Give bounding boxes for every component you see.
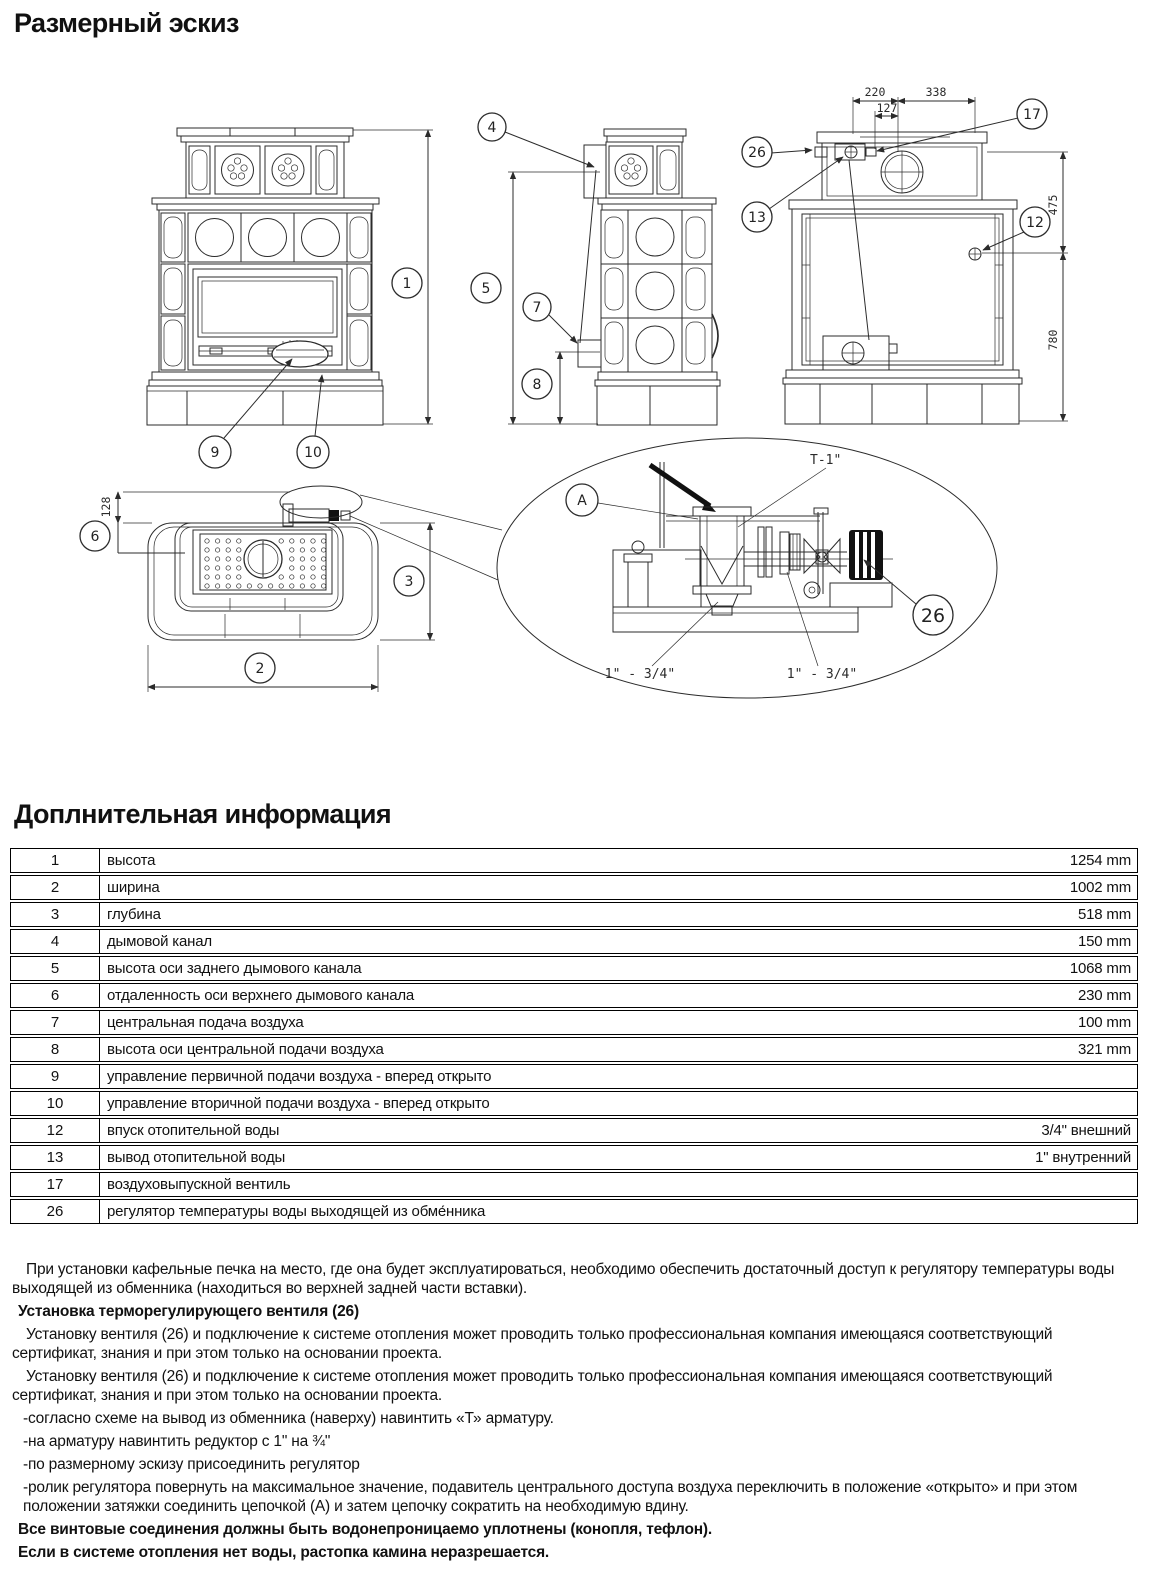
- svg-text:12: 12: [1026, 215, 1044, 231]
- row-value: 100 mm: [1078, 1011, 1137, 1034]
- table-row: 4 дымовой канал 150 mm: [10, 929, 1138, 954]
- svg-text:7: 7: [533, 300, 542, 316]
- row-number: 17: [11, 1173, 100, 1196]
- note-heading-valve-install: Установка терморегулирующего вентиля (26…: [12, 1302, 1138, 1321]
- table-row: 10 управление вторичной подачи воздуха -…: [10, 1091, 1138, 1116]
- svg-text:8: 8: [533, 377, 542, 393]
- row-value: [1131, 1092, 1137, 1115]
- table-row: 2 ширина 1002 mm: [10, 875, 1138, 900]
- note-warning-sealing: Все винтовые соединения должны быть водо…: [12, 1520, 1138, 1539]
- row-description: ширина: [100, 876, 1070, 899]
- row-description: дымовой канал: [100, 930, 1078, 953]
- svg-text:A: A: [577, 493, 587, 509]
- table-row: 12 впуск отопительной воды 3/4" внешний: [10, 1118, 1138, 1143]
- callout-12: 12: [1020, 207, 1050, 237]
- row-number: 8: [11, 1038, 100, 1061]
- row-number: 26: [11, 1200, 100, 1223]
- section-title: Доплнительная информация: [14, 799, 391, 830]
- table-row: 9 управление первичной подачи воздуха - …: [10, 1064, 1138, 1089]
- row-description: высота оси заднего дымового канала: [100, 957, 1070, 980]
- row-description: вывод отопительной воды: [100, 1146, 1035, 1169]
- row-number: 12: [11, 1119, 100, 1142]
- table-row: 7 центральная подача воздуха 100 mm: [10, 1010, 1138, 1035]
- row-value: 1254 mm: [1070, 849, 1137, 872]
- row-description: воздуховыпускной вентиль: [100, 1173, 1131, 1196]
- note-step-regulator: -по размерному эскизу присоединить регул…: [12, 1455, 1138, 1474]
- dimensional-sketch: 1 9 10: [0, 0, 1149, 762]
- label-reducer-left: 1" - 3/4": [605, 667, 675, 682]
- row-value: [1131, 1065, 1137, 1088]
- svg-text:2: 2: [256, 661, 265, 677]
- callout-17: 17: [1017, 99, 1047, 129]
- svg-text:9: 9: [211, 445, 220, 461]
- dim-338: 338: [926, 85, 947, 99]
- row-value: 150 mm: [1078, 930, 1137, 953]
- callout-3: 3: [394, 566, 424, 596]
- detail-view: T-1" A 1" - 3/4" 1" - 3/4" 26: [497, 438, 997, 698]
- row-value: 230 mm: [1078, 984, 1137, 1007]
- note-warning-no-water: Если в системе отопления нет воды, расто…: [12, 1543, 1138, 1562]
- info-table: 1 высота 1254 mm 2 ширина 1002 mm 3 глуб…: [10, 848, 1138, 1226]
- row-number: 5: [11, 957, 100, 980]
- svg-text:1: 1: [403, 276, 412, 292]
- row-description: центральная подача воздуха: [100, 1011, 1078, 1034]
- rear-view: 220 338 127 475 780 17 26 13 12: [742, 85, 1068, 424]
- row-value: 518 mm: [1078, 903, 1137, 926]
- note-paragraph-certified-1: Установку вентиля (26) и подключение к с…: [12, 1325, 1138, 1363]
- row-description: регулятор температуры воды выходящей из …: [100, 1200, 1131, 1223]
- front-view: 1 9 10: [147, 128, 433, 468]
- callout-8: 8: [522, 369, 552, 399]
- note-paragraph-access: При установки кафельные печка на место, …: [12, 1260, 1138, 1298]
- svg-text:13: 13: [748, 210, 766, 226]
- callout-13: 13: [742, 202, 772, 232]
- row-number: 10: [11, 1092, 100, 1115]
- callout-5: 5: [471, 273, 501, 303]
- row-description: высота: [100, 849, 1070, 872]
- table-row: 13 вывод отопительной воды 1" внутренний: [10, 1145, 1138, 1170]
- svg-text:4: 4: [488, 120, 497, 136]
- note-step-reducer: -на арматуру навинтить редуктор с 1" на …: [12, 1432, 1138, 1451]
- row-description: управление вторичной подачи воздуха - вп…: [100, 1092, 1131, 1115]
- row-number: 3: [11, 903, 100, 926]
- row-number: 9: [11, 1065, 100, 1088]
- table-row: 1 высота 1254 mm: [10, 848, 1138, 873]
- row-value: [1131, 1200, 1137, 1223]
- table-row: 6 отдаленность оси верхнего дымового кан…: [10, 983, 1138, 1008]
- dim-475: 475: [1046, 195, 1060, 216]
- row-number: 6: [11, 984, 100, 1007]
- callout-6: 6: [80, 521, 110, 551]
- side-view: 5 8 7 4: [471, 113, 720, 425]
- callout-A: A: [566, 484, 598, 516]
- dim-127: 127: [877, 101, 898, 115]
- row-number: 1: [11, 849, 100, 872]
- table-row: 8 высота оси центральной подачи воздуха …: [10, 1037, 1138, 1062]
- callout-2: 2: [245, 653, 275, 683]
- table-row: 26 регулятор температуры воды выходящей …: [10, 1199, 1138, 1224]
- label-reducer-right: 1" - 3/4": [787, 667, 857, 682]
- row-value: 1002 mm: [1070, 876, 1137, 899]
- label-t-fitting: T-1": [810, 453, 841, 468]
- callout-26-detail: 26: [913, 595, 953, 635]
- row-description: отдаленность оси верхнего дымового канал…: [100, 984, 1078, 1007]
- document-page: { "page": { "title1": "Размерный эскиз",…: [0, 0, 1149, 1579]
- svg-text:26: 26: [748, 145, 766, 161]
- table-row: 17 воздуховыпускной вентиль: [10, 1172, 1138, 1197]
- svg-text:26: 26: [921, 605, 945, 627]
- svg-text:3: 3: [405, 574, 414, 590]
- note-paragraph-certified-2: Установку вентиля (26) и подключение к с…: [12, 1367, 1138, 1405]
- note-step-t-fitting: -согласно схеме на вывод из обменника (н…: [12, 1409, 1138, 1428]
- svg-text:6: 6: [91, 529, 100, 545]
- row-value: 3/4" внешний: [1041, 1119, 1137, 1142]
- row-value: [1131, 1173, 1137, 1196]
- row-description: впуск отопительной воды: [100, 1119, 1041, 1142]
- notes-section: При установки кафельные печка на место, …: [12, 1260, 1138, 1566]
- callout-9: 9: [199, 436, 231, 468]
- dim-220: 220: [865, 85, 886, 99]
- plan-view: 128 6 2 3: [80, 486, 502, 692]
- row-value: 1" внутренний: [1035, 1146, 1137, 1169]
- row-number: 7: [11, 1011, 100, 1034]
- svg-text:10: 10: [304, 445, 322, 461]
- row-description: глубина: [100, 903, 1078, 926]
- row-number: 2: [11, 876, 100, 899]
- table-row: 5 высота оси заднего дымового канала 106…: [10, 956, 1138, 981]
- callout-10: 10: [297, 436, 329, 468]
- callout-4: 4: [478, 113, 506, 141]
- dim-780: 780: [1046, 330, 1060, 351]
- row-value: 1068 mm: [1070, 957, 1137, 980]
- callout-26: 26: [742, 137, 772, 167]
- callout-7: 7: [523, 293, 551, 321]
- callout-1: 1: [392, 268, 422, 298]
- row-number: 4: [11, 930, 100, 953]
- row-description: высота оси центральной подачи воздуха: [100, 1038, 1078, 1061]
- note-step-roller-chain: -ролик регулятора повернуть на максималь…: [12, 1478, 1138, 1516]
- svg-text:17: 17: [1023, 107, 1041, 123]
- row-description: управление первичной подачи воздуха - вп…: [100, 1065, 1131, 1088]
- table-row: 3 глубина 518 mm: [10, 902, 1138, 927]
- row-value: 321 mm: [1078, 1038, 1137, 1061]
- dim-128: 128: [99, 497, 113, 518]
- svg-text:5: 5: [482, 281, 491, 297]
- row-number: 13: [11, 1146, 100, 1169]
